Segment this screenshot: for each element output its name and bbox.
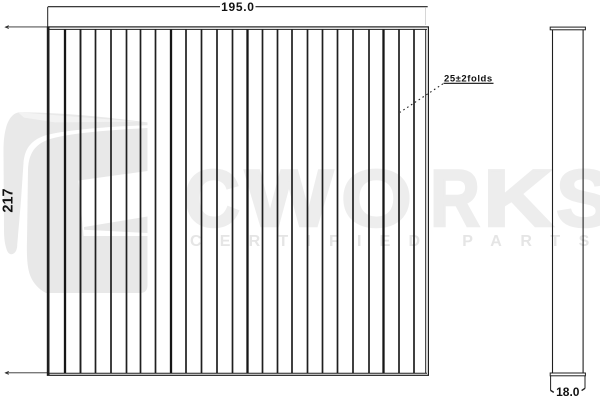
svg-text:K: K (483, 154, 553, 244)
svg-text:W: W (245, 154, 334, 244)
svg-text:18.0: 18.0 (556, 385, 580, 399)
svg-text:195.0: 195.0 (221, 0, 255, 14)
svg-text:PARTS: PARTS (462, 233, 600, 250)
svg-text:CERTIFIED: CERTIFIED (190, 233, 438, 250)
svg-text:R: R (430, 154, 480, 244)
svg-text:217: 217 (0, 188, 16, 212)
svg-text:S: S (556, 154, 600, 244)
svg-text:O: O (341, 154, 412, 244)
svg-text:C: C (184, 154, 240, 244)
